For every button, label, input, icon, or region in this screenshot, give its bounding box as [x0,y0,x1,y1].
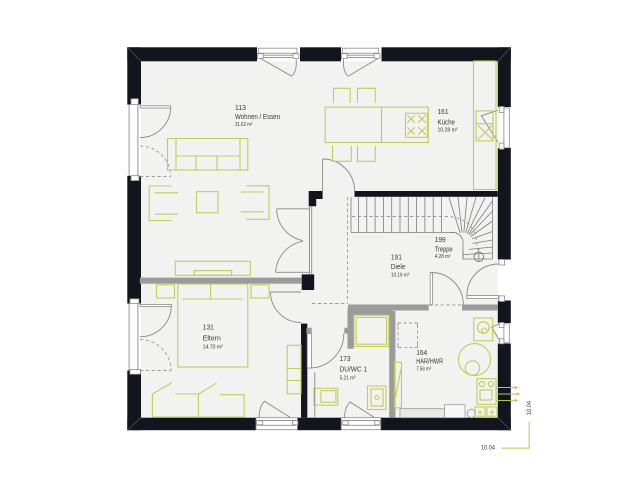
svg-text:5.21 m²: 5.21 m² [340,376,356,382]
svg-text:199: 199 [435,235,446,244]
svg-text:10.04: 10.04 [481,444,495,451]
svg-text:164: 164 [416,348,427,357]
svg-text:10.28 m²: 10.28 m² [438,128,458,134]
svg-text:Treppe: Treppe [435,245,453,254]
svg-text:Eltern: Eltern [203,334,221,343]
svg-text:191: 191 [391,253,402,262]
svg-text:DU/WC 1: DU/WC 1 [340,365,368,374]
svg-text:Wohnen / Essen: Wohnen / Essen [235,112,280,121]
svg-text:31.62 m²: 31.62 m² [235,122,253,128]
svg-text:173: 173 [340,354,351,363]
svg-text:161: 161 [438,107,449,116]
svg-text:HAR/HWR: HAR/HWR [416,357,443,366]
svg-text:7.56 m²: 7.56 m² [416,367,431,373]
svg-text:10.16 m²: 10.16 m² [391,273,410,279]
svg-text:113: 113 [235,103,246,112]
svg-text:131: 131 [203,323,214,332]
svg-text:4.28 m²: 4.28 m² [435,254,451,260]
svg-text:Küche: Küche [438,117,456,126]
svg-text:Diele: Diele [391,262,406,271]
svg-text:10.04: 10.04 [526,401,533,415]
svg-text:14.70 m²: 14.70 m² [203,345,223,351]
